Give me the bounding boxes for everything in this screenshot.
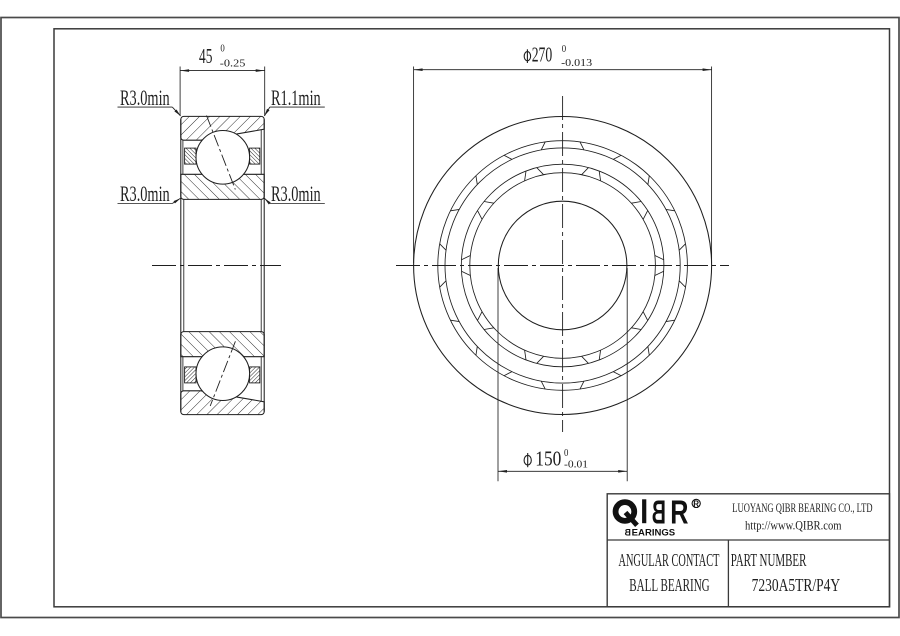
svg-text:LUOYANG QIBR BEARING CO., LTD: LUOYANG QIBR BEARING CO., LTD [732, 500, 872, 515]
svg-text:7230A5TR/P4Y: 7230A5TR/P4Y [752, 575, 841, 595]
svg-text:0: 0 [220, 44, 224, 55]
svg-text:-0.25: -0.25 [220, 58, 246, 69]
svg-text:R3.0min: R3.0min [120, 85, 170, 110]
svg-text:R: R [670, 493, 688, 530]
svg-text:B: B [652, 493, 666, 530]
svg-text:0: 0 [562, 44, 566, 55]
svg-text:BALL BEARING: BALL BEARING [629, 575, 710, 595]
svg-text:B: B [625, 527, 631, 537]
svg-text:270: 270 [532, 43, 553, 67]
svg-text:0: 0 [564, 448, 568, 459]
svg-text:EARINGS: EARINGS [632, 527, 676, 537]
svg-text:R3.0min: R3.0min [271, 181, 321, 206]
svg-text:ANGULAR CONTACT: ANGULAR CONTACT [619, 550, 720, 570]
svg-text:45: 45 [199, 44, 212, 68]
svg-text:-0.013: -0.013 [561, 58, 592, 69]
svg-text:-0.01: -0.01 [564, 459, 588, 470]
svg-text:PART NUMBER: PART NUMBER [731, 550, 807, 570]
svg-text:R: R [693, 499, 699, 508]
svg-text:R3.0min: R3.0min [120, 181, 170, 206]
svg-text:150: 150 [535, 447, 561, 471]
svg-text:http://www.QIBR.com: http://www.QIBR.com [745, 518, 842, 533]
svg-text:R1.1min: R1.1min [271, 85, 321, 110]
